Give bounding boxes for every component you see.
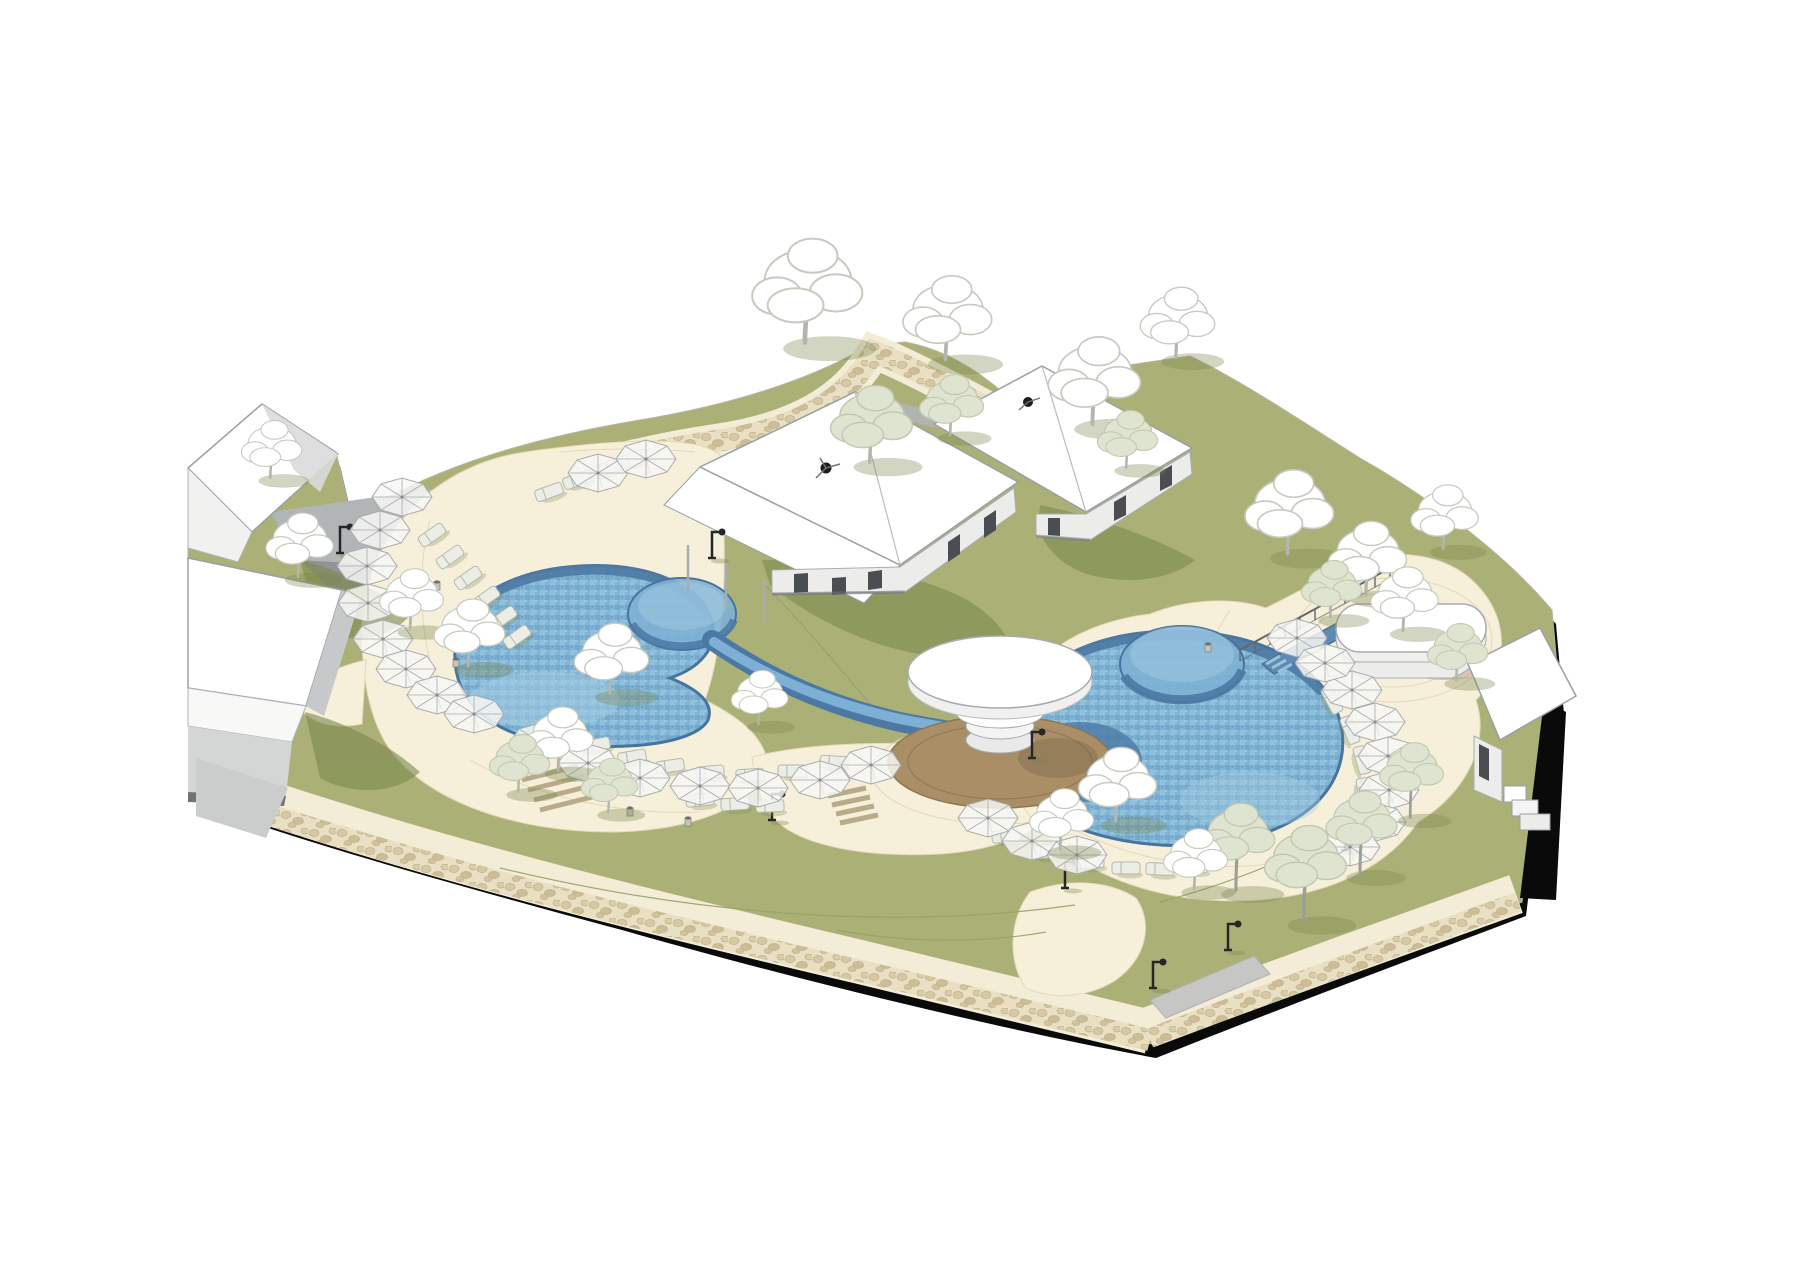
umbrella-parasol (728, 769, 788, 807)
rendering-canvas (0, 0, 1800, 1264)
umbrella-parasol (1295, 644, 1355, 682)
bollard-light (453, 657, 459, 667)
umbrella-parasol (670, 767, 730, 805)
umbrella-parasol (790, 761, 850, 799)
umbrella-parasol (372, 478, 432, 516)
tree-white-outline (752, 239, 876, 361)
umbrella-parasol (337, 547, 397, 585)
umbrella-parasol (841, 746, 901, 784)
umbrella-parasol (1345, 703, 1405, 741)
umbrella-parasol (444, 695, 504, 733)
pavilion-canopy (908, 636, 1092, 708)
tree-white-outline (1140, 287, 1224, 370)
bollard-light (685, 816, 691, 826)
bollard-light (1205, 642, 1211, 652)
umbrella-parasol (350, 511, 410, 549)
site-plan-rendering (0, 0, 1800, 1264)
umbrella-parasol (616, 440, 676, 478)
